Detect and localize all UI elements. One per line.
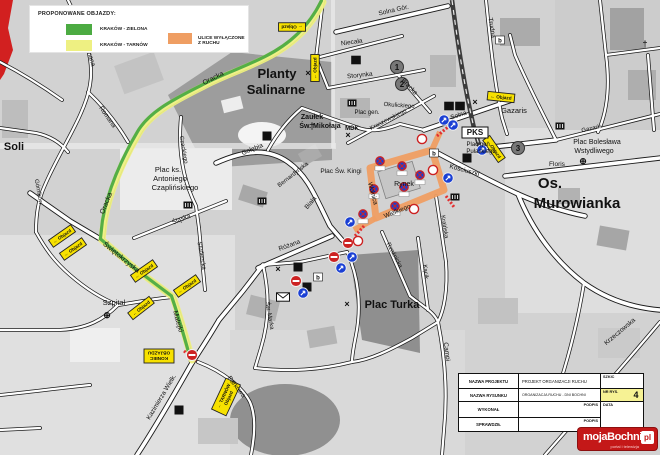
route-number-box: 3 — [263, 132, 272, 141]
title-block-nazwa-projektu-label: NAZWA PROJEKTU — [459, 374, 519, 389]
objazd-detour-sign: KONIECOBJAZDU — [144, 349, 174, 363]
objazd-sign-text: KONIEC — [149, 356, 168, 361]
no-entry-sign-icon — [345, 242, 352, 244]
no-entry-sign-icon — [187, 350, 198, 361]
street-label: Rynek — [394, 181, 414, 188]
map-shape — [198, 418, 238, 444]
objazd-sign-text: ← Objazd — [313, 57, 318, 78]
place-label: Św. Mikołaja — [299, 121, 340, 130]
no-entry-sign-icon — [343, 238, 354, 249]
objazd-detour-sign: ← Objazd — [279, 23, 306, 32]
place-label: Salinarne — [247, 82, 306, 97]
podpis2-label: PODPIS — [584, 419, 598, 423]
moja-bochnia-logo[interactable]: mojaBochnia pl portal i telewizja — [578, 428, 657, 450]
museum-icon — [258, 198, 267, 205]
legend-label-krakow-zielona: KRAKÓW - ZIELONA — [100, 27, 147, 32]
route-number-box: 2 — [294, 263, 303, 272]
street-label: Wstydliwego — [574, 148, 613, 155]
title-block-nazwa-rysunku-label: NAZWA RYSUNKU — [459, 389, 519, 402]
legend-swatch-yellow — [66, 40, 92, 51]
museum-icon — [348, 100, 357, 107]
objazd-sign-text: OBJAZDU — [147, 351, 170, 356]
nr-rys-label: NR RYS. — [603, 390, 618, 394]
sign-plaque — [358, 219, 368, 224]
map-symbol-letter: H — [458, 104, 462, 110]
map-symbol-letter: b — [432, 151, 436, 157]
legend-swatch-green — [66, 24, 92, 35]
route-number: 5 — [465, 155, 469, 162]
street-label: Plac gen. — [466, 142, 491, 148]
title-block-nazwa-projektu-value: PROJEKT ORGANIZACJI RUCHU — [519, 374, 601, 389]
title-block-wykonal-value: PODPIS — [519, 402, 601, 418]
map-symbol-b: b — [496, 36, 505, 44]
street-label: Pułaskiego — [466, 149, 496, 155]
poi-icon: × — [472, 97, 477, 107]
map-symbol-letter: H — [354, 58, 358, 64]
map-symbol-b: b — [314, 273, 323, 281]
museum-icon — [556, 123, 565, 130]
title-block-nr-rys-cell: NR RYS. 4 — [601, 389, 643, 402]
mandatory-direction-sign-icon — [347, 252, 357, 262]
podpis-label: PODPIS — [584, 403, 598, 407]
sign-plaque — [397, 171, 407, 176]
map-shape — [610, 8, 644, 50]
place-label: Plac Turka — [365, 299, 421, 311]
mandatory-direction-sign-icon — [345, 217, 355, 227]
map-symbol-h: H — [456, 102, 465, 110]
route-number: 2 — [296, 264, 300, 271]
logo-word: mojaBochnia — [583, 431, 648, 443]
poi-icon: × — [275, 264, 280, 274]
legend-swatch-orange — [168, 33, 192, 44]
mandatory-direction-sign-icon — [336, 263, 346, 273]
street-label: Plac gen. — [354, 110, 379, 116]
objazd-detour-sign: ← Objazd — [311, 55, 320, 82]
title-block-data-cell: DATA — [601, 402, 643, 431]
no-entry-sign-icon — [329, 252, 340, 263]
map-shape — [500, 18, 540, 46]
map-shape — [0, 143, 336, 149]
poi-number-badge: 3 — [512, 142, 525, 155]
no-entry-sign-icon — [293, 280, 300, 282]
no-entry-sign-icon — [189, 354, 196, 356]
sign-plaque — [415, 180, 425, 185]
street-label: Floris — [549, 161, 566, 168]
no-entry-sign-icon — [331, 256, 338, 258]
route-number: 3 — [265, 133, 269, 140]
street-label: Plac Św. Kingi — [320, 166, 361, 175]
place-label: MDK — [345, 126, 359, 132]
title-block-wykonal-label: WYKONAŁ — [459, 402, 519, 418]
poi-number: 1 — [395, 63, 400, 72]
legend-label-krakow-tarnow: KRAKÓW - TARNÓW — [100, 43, 148, 48]
street-label: Antoniego — [153, 174, 187, 183]
route-number: 4 — [177, 407, 181, 414]
map-shape — [70, 328, 120, 362]
nr-rys-value: 4 — [633, 390, 638, 400]
street-label: Plac ks. — [155, 165, 181, 174]
sign-plaque — [375, 166, 385, 171]
no-stopping-sign-icon — [375, 157, 385, 171]
map-symbol-letter: b — [498, 38, 502, 44]
place-label: Os. — [538, 175, 562, 192]
no-traffic-sign-icon — [417, 134, 426, 143]
map-shape — [478, 298, 518, 324]
route-number-box: 4 — [175, 406, 184, 415]
title-block: NAZWA PROJEKTU PROJEKT ORGANIZACJI RUCHU… — [458, 373, 644, 432]
place-label: PKS — [467, 128, 484, 137]
legend-title: PROPONOWANE OBJAZDY: — [38, 11, 116, 17]
poi-icon: × — [344, 299, 349, 309]
street-label: Plac Bolesława — [573, 139, 621, 146]
poi-icon: × — [305, 68, 310, 78]
street-label: Gazaris — [501, 106, 527, 115]
no-traffic-sign-icon — [428, 165, 437, 174]
place-label: Murowianka — [534, 195, 621, 212]
post-office-icon — [277, 293, 290, 301]
sign-plaque — [399, 192, 409, 197]
title-block-szkic-cell: SZKIC — [601, 374, 643, 389]
place-label: Soli — [4, 141, 24, 153]
legend-label-ulice-wylaczone: ULICE WYŁĄCZONE Z RUCHU — [198, 36, 248, 46]
title-block-sprawdzil-label: SPRAWDZIŁ — [459, 418, 519, 431]
no-stopping-sign-icon — [358, 210, 368, 224]
logo-tagline: portal i telewizja — [611, 444, 639, 449]
no-stopping-sign-icon — [415, 171, 425, 185]
mandatory-direction-sign-icon — [443, 173, 453, 183]
objazd-sign-text: ← Objazd — [281, 24, 302, 29]
traffic-map-page: ††×××××⊕⊕HitHbbb32574123 ← Objazd← Objaz… — [0, 0, 660, 455]
map-symbol-h: H — [352, 56, 361, 64]
data-label: DATA — [603, 403, 613, 407]
place-label: Zaułek — [301, 114, 323, 121]
hospital-icon: ⊕ — [103, 310, 111, 320]
health-icon: ⊕ — [579, 156, 587, 166]
legend: PROPONOWANE OBJAZDY: KRAKÓW - ZIELONA KR… — [30, 6, 248, 52]
logo-pl-badge: pl — [641, 431, 654, 444]
street-label: Czaplińskiego — [152, 183, 199, 192]
church-icon: † — [642, 39, 647, 49]
museum-icon — [451, 194, 460, 201]
poi-number-badge: 1 — [391, 61, 404, 74]
no-traffic-sign-icon — [353, 236, 362, 245]
mandatory-direction-sign-icon — [448, 120, 458, 130]
map-symbol-letter: it — [447, 104, 451, 110]
poi-number: 3 — [516, 144, 521, 153]
map-symbol-it: it — [445, 102, 454, 110]
map-symbol-letter: b — [316, 275, 320, 281]
mandatory-direction-sign-icon — [298, 288, 308, 298]
no-stopping-sign-icon — [397, 162, 407, 176]
szkic-label: SZKIC — [603, 375, 614, 379]
title-block-nazwa-rysunku-value: ORGANIZACJA RUCHU - DNI BOCHNI — [519, 389, 601, 402]
place-label: Planty — [257, 66, 297, 81]
street-label: Szpital — [103, 298, 126, 307]
map-shape — [430, 55, 456, 87]
no-entry-sign-icon — [291, 276, 302, 287]
museum-icon — [184, 202, 193, 209]
map-symbol-b: b — [430, 149, 439, 157]
